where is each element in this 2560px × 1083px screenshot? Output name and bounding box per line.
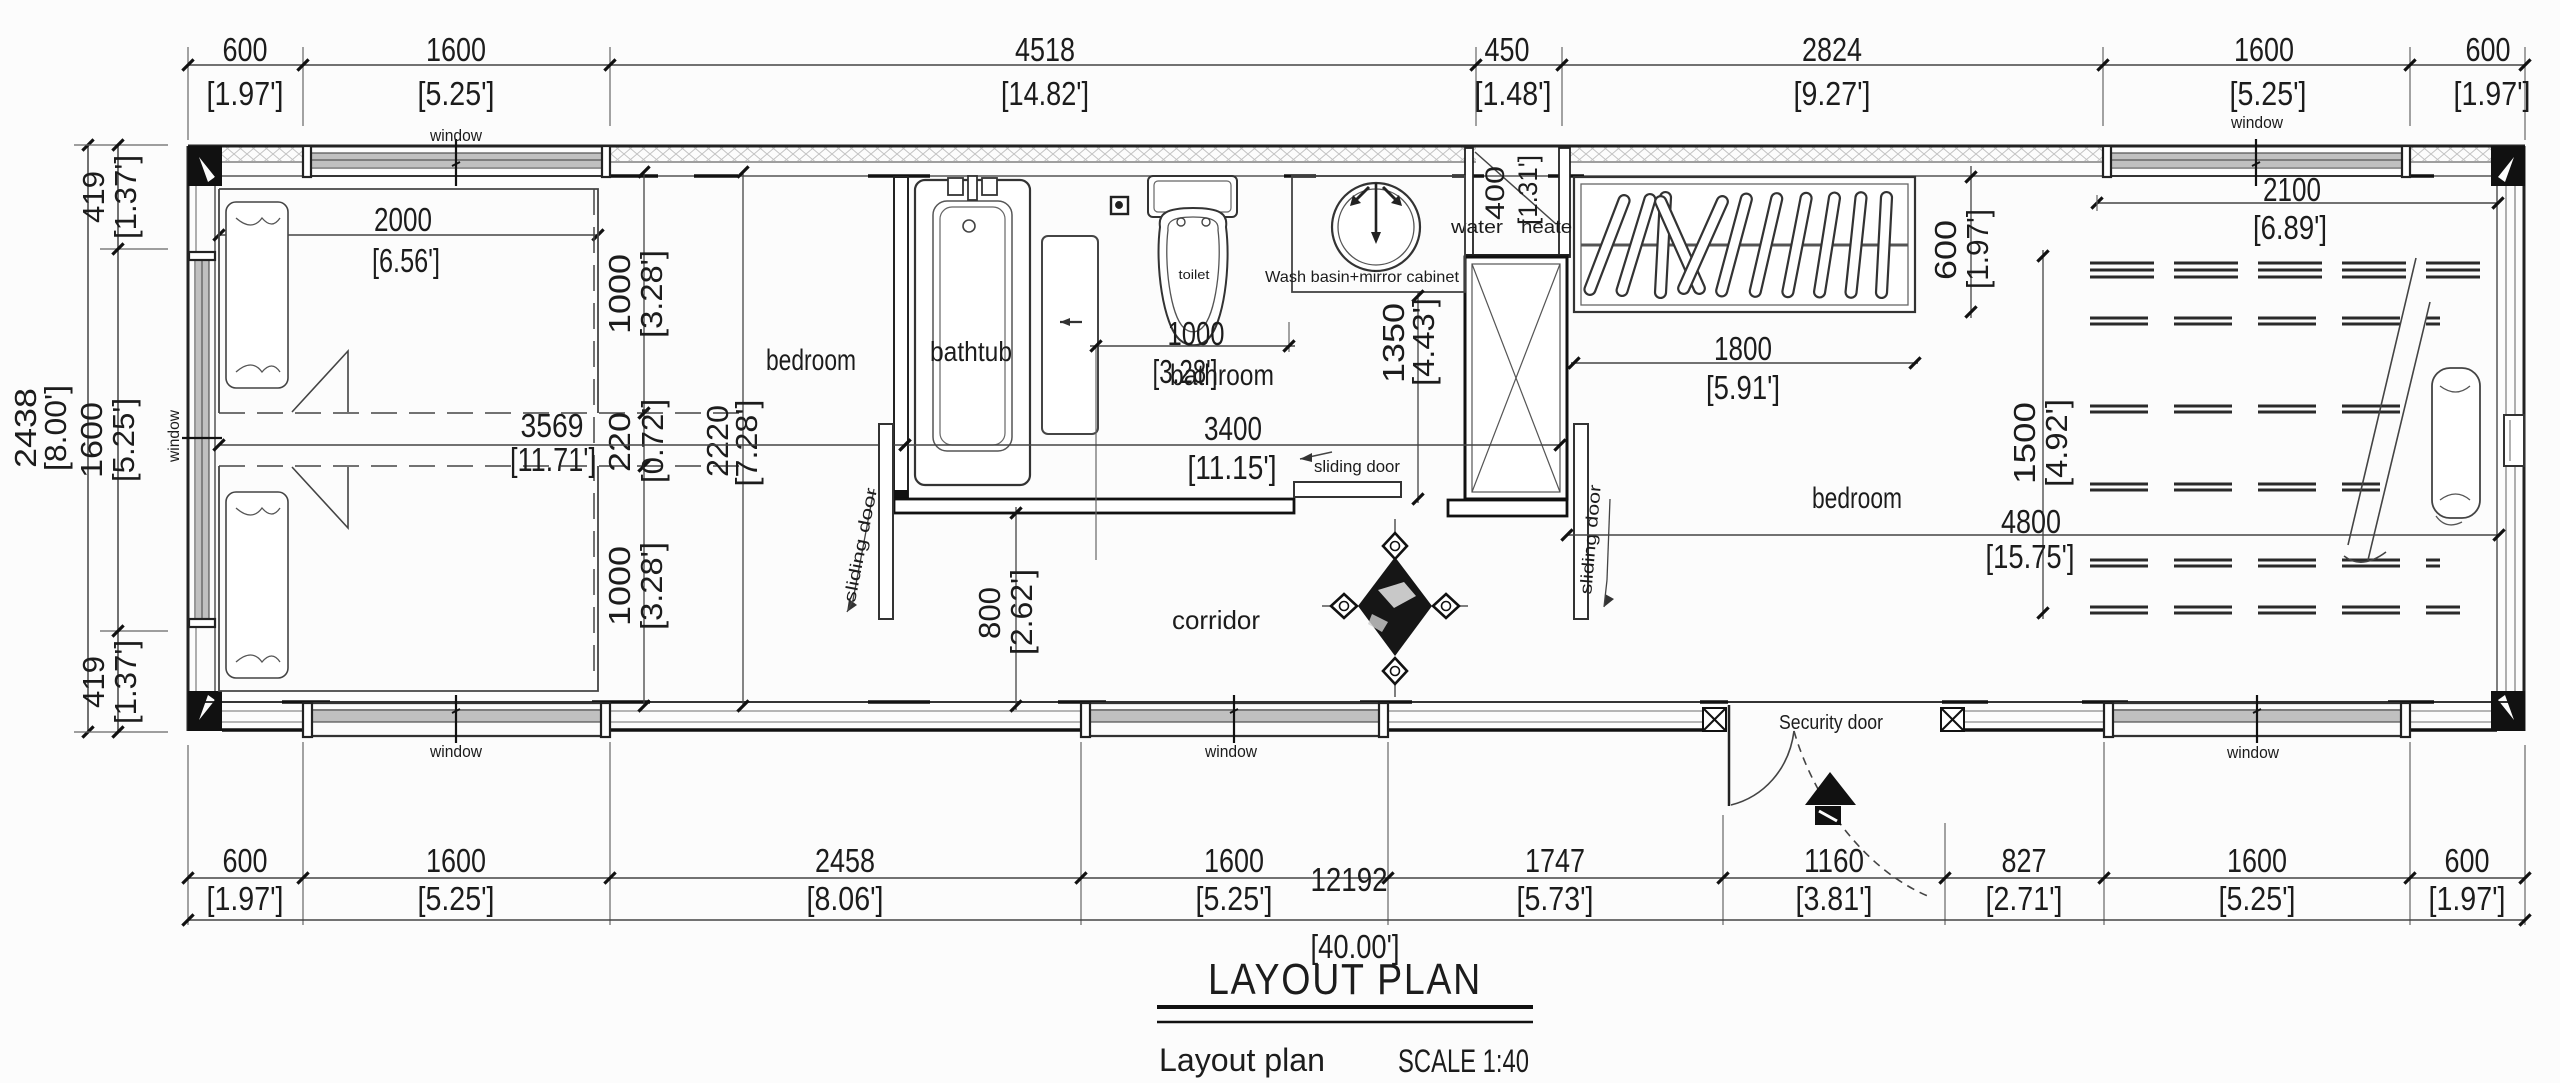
svg-text:1600: 1600 (74, 402, 109, 478)
svg-text:[11.71']: [11.71'] (510, 441, 596, 478)
svg-text:2824: 2824 (1802, 31, 1862, 68)
svg-text:600: 600 (223, 842, 268, 879)
svg-text:LAYOUT PLAN: LAYOUT PLAN (1208, 955, 1482, 1004)
svg-text:[1.97']: [1.97'] (2454, 75, 2531, 112)
svg-text:[8.00']: [8.00'] (38, 385, 73, 471)
svg-text:[5.25']: [5.25'] (418, 880, 495, 917)
svg-text:3400: 3400 (1204, 410, 1262, 447)
svg-text:[2.62']: [2.62'] (1004, 569, 1039, 655)
svg-text:[11.15']: [11.15'] (1188, 449, 1277, 486)
svg-text:1600: 1600 (426, 842, 486, 879)
svg-text:2000: 2000 (374, 201, 432, 238)
svg-text:window: window (2230, 113, 2284, 132)
svg-text:1600: 1600 (426, 31, 486, 68)
svg-text:[1.97']: [1.97'] (207, 880, 284, 917)
svg-text:1600: 1600 (1204, 842, 1264, 879)
svg-text:4800: 4800 (2001, 503, 2061, 540)
svg-text:[5.25']: [5.25'] (2230, 75, 2307, 112)
svg-text:[6.89']: [6.89'] (2253, 209, 2327, 246)
svg-text:600: 600 (2466, 31, 2511, 68)
svg-text:toilet: toilet (1179, 267, 1210, 282)
svg-text:bedroom: bedroom (766, 344, 856, 377)
svg-text:[1.97']: [1.97'] (2429, 880, 2506, 917)
svg-text:400: 400 (1480, 166, 1510, 220)
svg-text:4518: 4518 (1015, 31, 1075, 68)
svg-text:[5.25']: [5.25'] (1196, 880, 1273, 917)
svg-text:12192: 12192 (1311, 861, 1388, 898)
svg-text:3569: 3569 (521, 407, 584, 444)
svg-text:800: 800 (972, 587, 1007, 639)
svg-text:419: 419 (76, 656, 111, 708)
svg-text:Wash basin+mirror cabinet: Wash basin+mirror cabinet (1265, 269, 1460, 286)
svg-text:[9.27']: [9.27'] (1794, 75, 1871, 112)
svg-text:[15.75']: [15.75'] (1986, 538, 2075, 575)
svg-text:[5.25']: [5.25'] (2219, 880, 2296, 917)
svg-text:Layout plan: Layout plan (1159, 1042, 1325, 1078)
svg-text:2100: 2100 (2263, 171, 2321, 208)
svg-text:[7.28']: [7.28'] (729, 400, 764, 487)
svg-text:SCALE 1:40: SCALE 1:40 (1398, 1043, 1529, 1079)
svg-text:1600: 1600 (2227, 842, 2287, 879)
svg-text:window: window (1204, 742, 1258, 761)
svg-text:[4.43']: [4.43'] (1406, 298, 1441, 386)
svg-text:[14.82']: [14.82'] (1001, 75, 1089, 112)
svg-text:450: 450 (1485, 31, 1530, 68)
svg-text:bathtub: bathtub (930, 336, 1012, 367)
svg-text:600: 600 (1928, 220, 1963, 280)
svg-text:600: 600 (223, 31, 268, 68)
svg-text:[2.71']: [2.71'] (1986, 880, 2063, 917)
svg-text:[1.48']: [1.48'] (1475, 75, 1552, 112)
svg-text:[1.97']: [1.97'] (1960, 209, 1995, 289)
svg-text:window: window (429, 742, 483, 761)
svg-text:1600: 1600 (2234, 31, 2294, 68)
svg-text:1000: 1000 (1168, 315, 1225, 352)
svg-text:bedroom: bedroom (1812, 482, 1902, 515)
svg-text:[1.37']: [1.37'] (108, 155, 143, 239)
svg-text:window: window (166, 410, 183, 463)
svg-text:[4.92']: [4.92'] (2039, 399, 2074, 487)
svg-text:[3.28']: [3.28'] (1153, 353, 1218, 390)
svg-text:[5.73']: [5.73'] (1517, 880, 1594, 917)
svg-text:[6.56']: [6.56'] (372, 242, 440, 279)
svg-text:827: 827 (2002, 842, 2047, 879)
svg-text:[5.25']: [5.25'] (106, 398, 141, 482)
svg-text:window: window (429, 126, 483, 145)
svg-text:[8.06']: [8.06'] (807, 880, 884, 917)
svg-text:[1.97']: [1.97'] (207, 75, 284, 112)
svg-text:1160: 1160 (1804, 842, 1864, 879)
svg-text:[0.72']: [0.72'] (635, 399, 670, 483)
svg-text:[1.37']: [1.37'] (108, 640, 143, 724)
svg-text:[3.28']: [3.28'] (634, 542, 669, 630)
svg-text:600: 600 (2445, 842, 2490, 879)
svg-text:[1.31']: [1.31'] (1513, 155, 1543, 225)
svg-text:1800: 1800 (1714, 330, 1772, 367)
svg-text:[5.25']: [5.25'] (418, 75, 495, 112)
svg-text:1500: 1500 (2007, 402, 2042, 484)
svg-text:corridor: corridor (1172, 605, 1260, 635)
svg-text:220: 220 (602, 412, 637, 472)
svg-text:1747: 1747 (1525, 842, 1585, 879)
svg-text:Security door: Security door (1779, 712, 1883, 734)
svg-text:sliding door: sliding door (1314, 457, 1400, 476)
svg-text:window: window (2226, 743, 2280, 762)
svg-text:1000: 1000 (602, 546, 637, 626)
svg-text:[3.81']: [3.81'] (1796, 880, 1873, 917)
svg-text:419: 419 (76, 171, 111, 223)
svg-text:1000: 1000 (602, 254, 637, 334)
svg-text:[5.91']: [5.91'] (1706, 369, 1780, 406)
svg-text:2458: 2458 (815, 842, 875, 879)
svg-text:[3.28']: [3.28'] (634, 250, 669, 338)
